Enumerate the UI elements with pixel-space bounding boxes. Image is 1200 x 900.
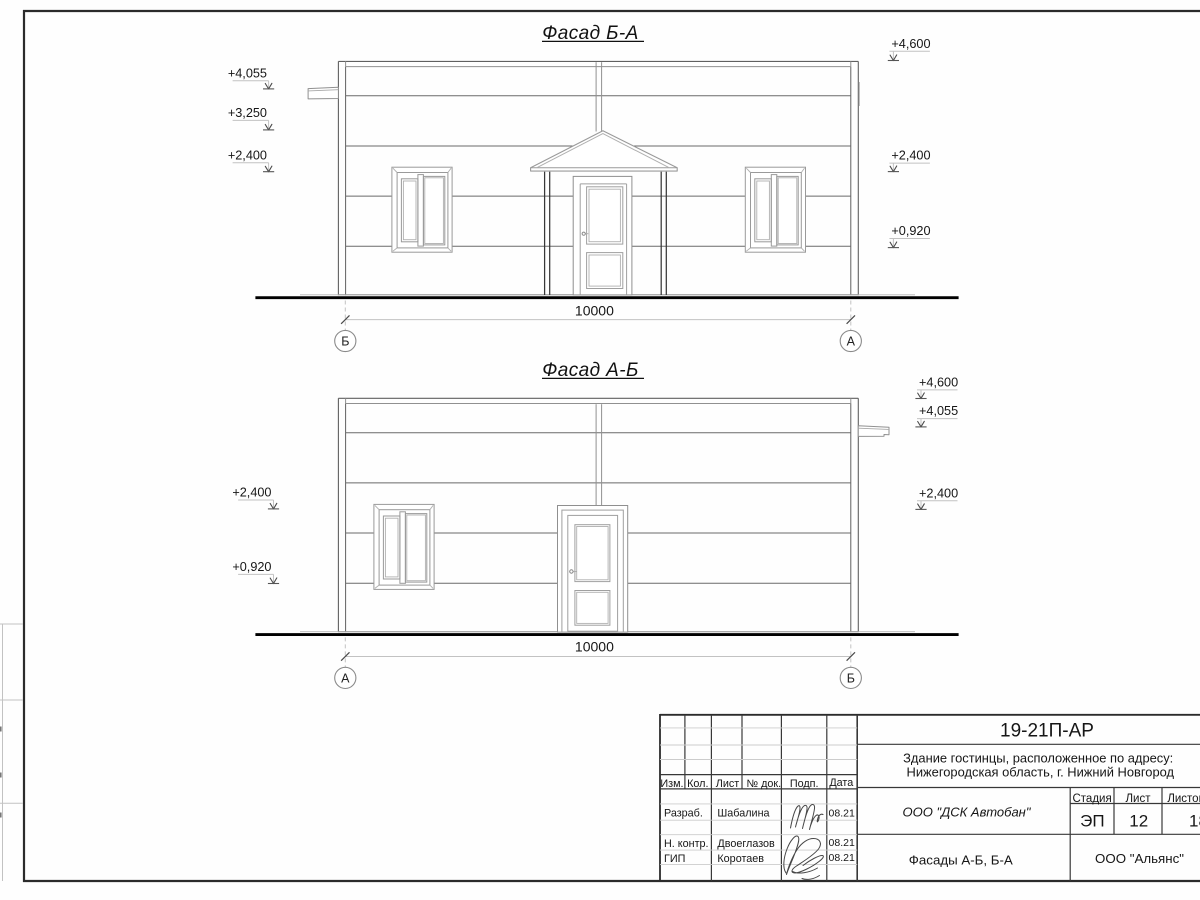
svg-text:Изм.: Изм. (660, 778, 683, 790)
svg-text:+2,400: +2,400 (232, 486, 271, 500)
svg-text:ООО "ДСК Автобан": ООО "ДСК Автобан" (903, 805, 1032, 820)
svg-text:+2,400: +2,400 (891, 149, 930, 163)
svg-text:Здание гостинцы, расположенное: Здание гостинцы, расположенное по адресу… (903, 751, 1173, 766)
svg-text:10000: 10000 (575, 638, 614, 654)
svg-text:ООО "Альянс": ООО "Альянс" (1095, 851, 1184, 866)
svg-text:Листов: Листов (1167, 793, 1200, 805)
svg-text:№ док.: № док. (746, 778, 781, 790)
svg-text:08.21: 08.21 (829, 837, 855, 849)
svg-text:19-21П-АР: 19-21П-АР (1000, 721, 1094, 742)
svg-text:Подп.: Подп. (790, 778, 819, 790)
svg-text:+4,600: +4,600 (919, 376, 958, 390)
svg-text:08.21: 08.21 (829, 807, 855, 819)
svg-text:18: 18 (1189, 812, 1200, 831)
svg-text:+4,055: +4,055 (228, 66, 267, 80)
svg-text:Нижегородская область, г. Нижн: Нижегородская область, г. Нижний Новгоро… (907, 764, 1175, 779)
svg-text:ЭП: ЭП (1080, 812, 1104, 831)
svg-text:+4,055: +4,055 (919, 404, 958, 418)
svg-text:+4,600: +4,600 (891, 37, 930, 51)
svg-text:Лист: Лист (1126, 793, 1152, 805)
svg-text:А: А (341, 671, 350, 685)
svg-text:Коротаев: Коротаев (717, 853, 764, 865)
svg-text:Б: Б (341, 334, 349, 348)
svg-text:08.21: 08.21 (829, 852, 855, 864)
svg-text:Дата: Дата (829, 777, 853, 789)
svg-text:+2,400: +2,400 (228, 148, 267, 162)
svg-text:10000: 10000 (575, 302, 614, 318)
svg-text:Лист: Лист (716, 778, 740, 790)
svg-text:Н. контр.: Н. контр. (664, 838, 709, 850)
svg-text:+3,250: +3,250 (228, 106, 267, 120)
svg-text:Шабалина: Шабалина (717, 807, 769, 819)
svg-text:Разраб.: Разраб. (664, 807, 703, 819)
svg-text:+0,920: +0,920 (891, 224, 930, 238)
svg-text:Двоеглазов: Двоеглазов (717, 838, 775, 850)
svg-text:Стадия: Стадия (1072, 793, 1111, 805)
svg-text:А: А (847, 334, 856, 348)
svg-text:+2,400: +2,400 (919, 486, 958, 500)
svg-text:Фасады А-Б, Б-А: Фасады А-Б, Б-А (909, 852, 1013, 867)
svg-text:Б: Б (847, 671, 855, 685)
svg-text:Кол.: Кол. (687, 778, 708, 790)
svg-text:ГИП: ГИП (664, 853, 685, 865)
svg-text:12: 12 (1129, 812, 1148, 831)
svg-text:+0,920: +0,920 (232, 560, 271, 574)
